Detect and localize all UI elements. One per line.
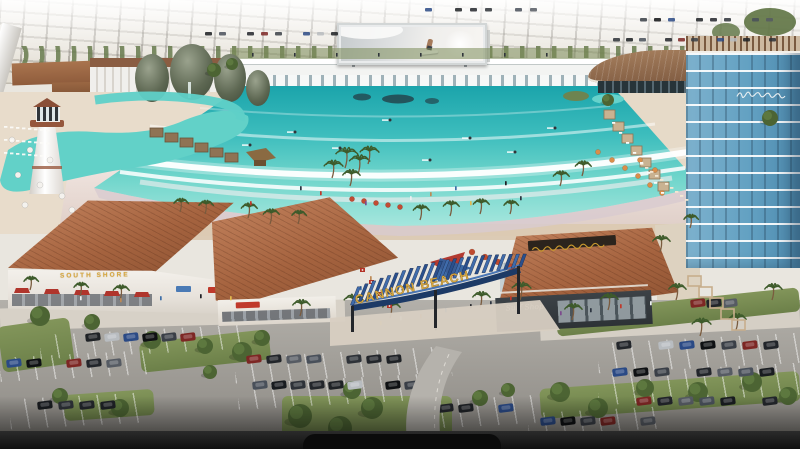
entrance-arch-label-layer: CANNON BEACH bbox=[0, 0, 800, 449]
bottom-vignette bbox=[0, 431, 800, 449]
bottom-tab bbox=[303, 434, 501, 449]
entrance-arch-text: CANNON BEACH bbox=[354, 268, 471, 307]
aerial-rendering: SOUTH SHORE Surf Shop CANNON BEACH bbox=[0, 0, 800, 449]
bottom-shadow bbox=[0, 396, 800, 432]
